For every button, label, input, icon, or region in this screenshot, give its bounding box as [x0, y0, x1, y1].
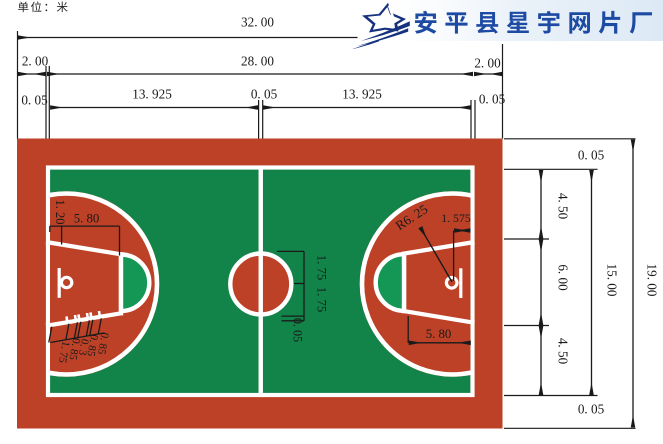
svg-text:4. 50: 4. 50 [556, 338, 571, 365]
svg-text:19. 00: 19. 00 [645, 264, 660, 297]
svg-text:0. 05: 0. 05 [251, 87, 278, 102]
svg-text:0. 05: 0. 05 [21, 93, 48, 108]
svg-text:1. 575: 1. 575 [441, 211, 471, 225]
svg-text:0. 05: 0. 05 [578, 148, 605, 163]
svg-text:0. 05: 0. 05 [578, 402, 605, 417]
svg-text:2. 00: 2. 00 [474, 56, 501, 71]
svg-text:1. 75: 1. 75 [315, 255, 329, 281]
svg-text:0. 05: 0. 05 [291, 318, 305, 342]
svg-text:13. 925: 13. 925 [132, 87, 172, 102]
svg-text:15. 00: 15. 00 [605, 264, 620, 297]
svg-text:5. 80: 5. 80 [426, 327, 452, 341]
svg-text:1. 20: 1. 20 [53, 200, 67, 225]
svg-text:32. 00: 32. 00 [241, 15, 274, 30]
svg-text:2. 00: 2. 00 [22, 54, 49, 69]
svg-text:13. 925: 13. 925 [342, 87, 382, 102]
svg-text:28. 00: 28. 00 [241, 54, 274, 69]
svg-text:1. 75: 1. 75 [315, 287, 329, 313]
svg-text:4. 50: 4. 50 [556, 193, 571, 220]
svg-text:6. 00: 6. 00 [556, 264, 571, 291]
svg-text:0. 05: 0. 05 [479, 92, 506, 107]
svg-text:5. 80: 5. 80 [74, 212, 100, 226]
